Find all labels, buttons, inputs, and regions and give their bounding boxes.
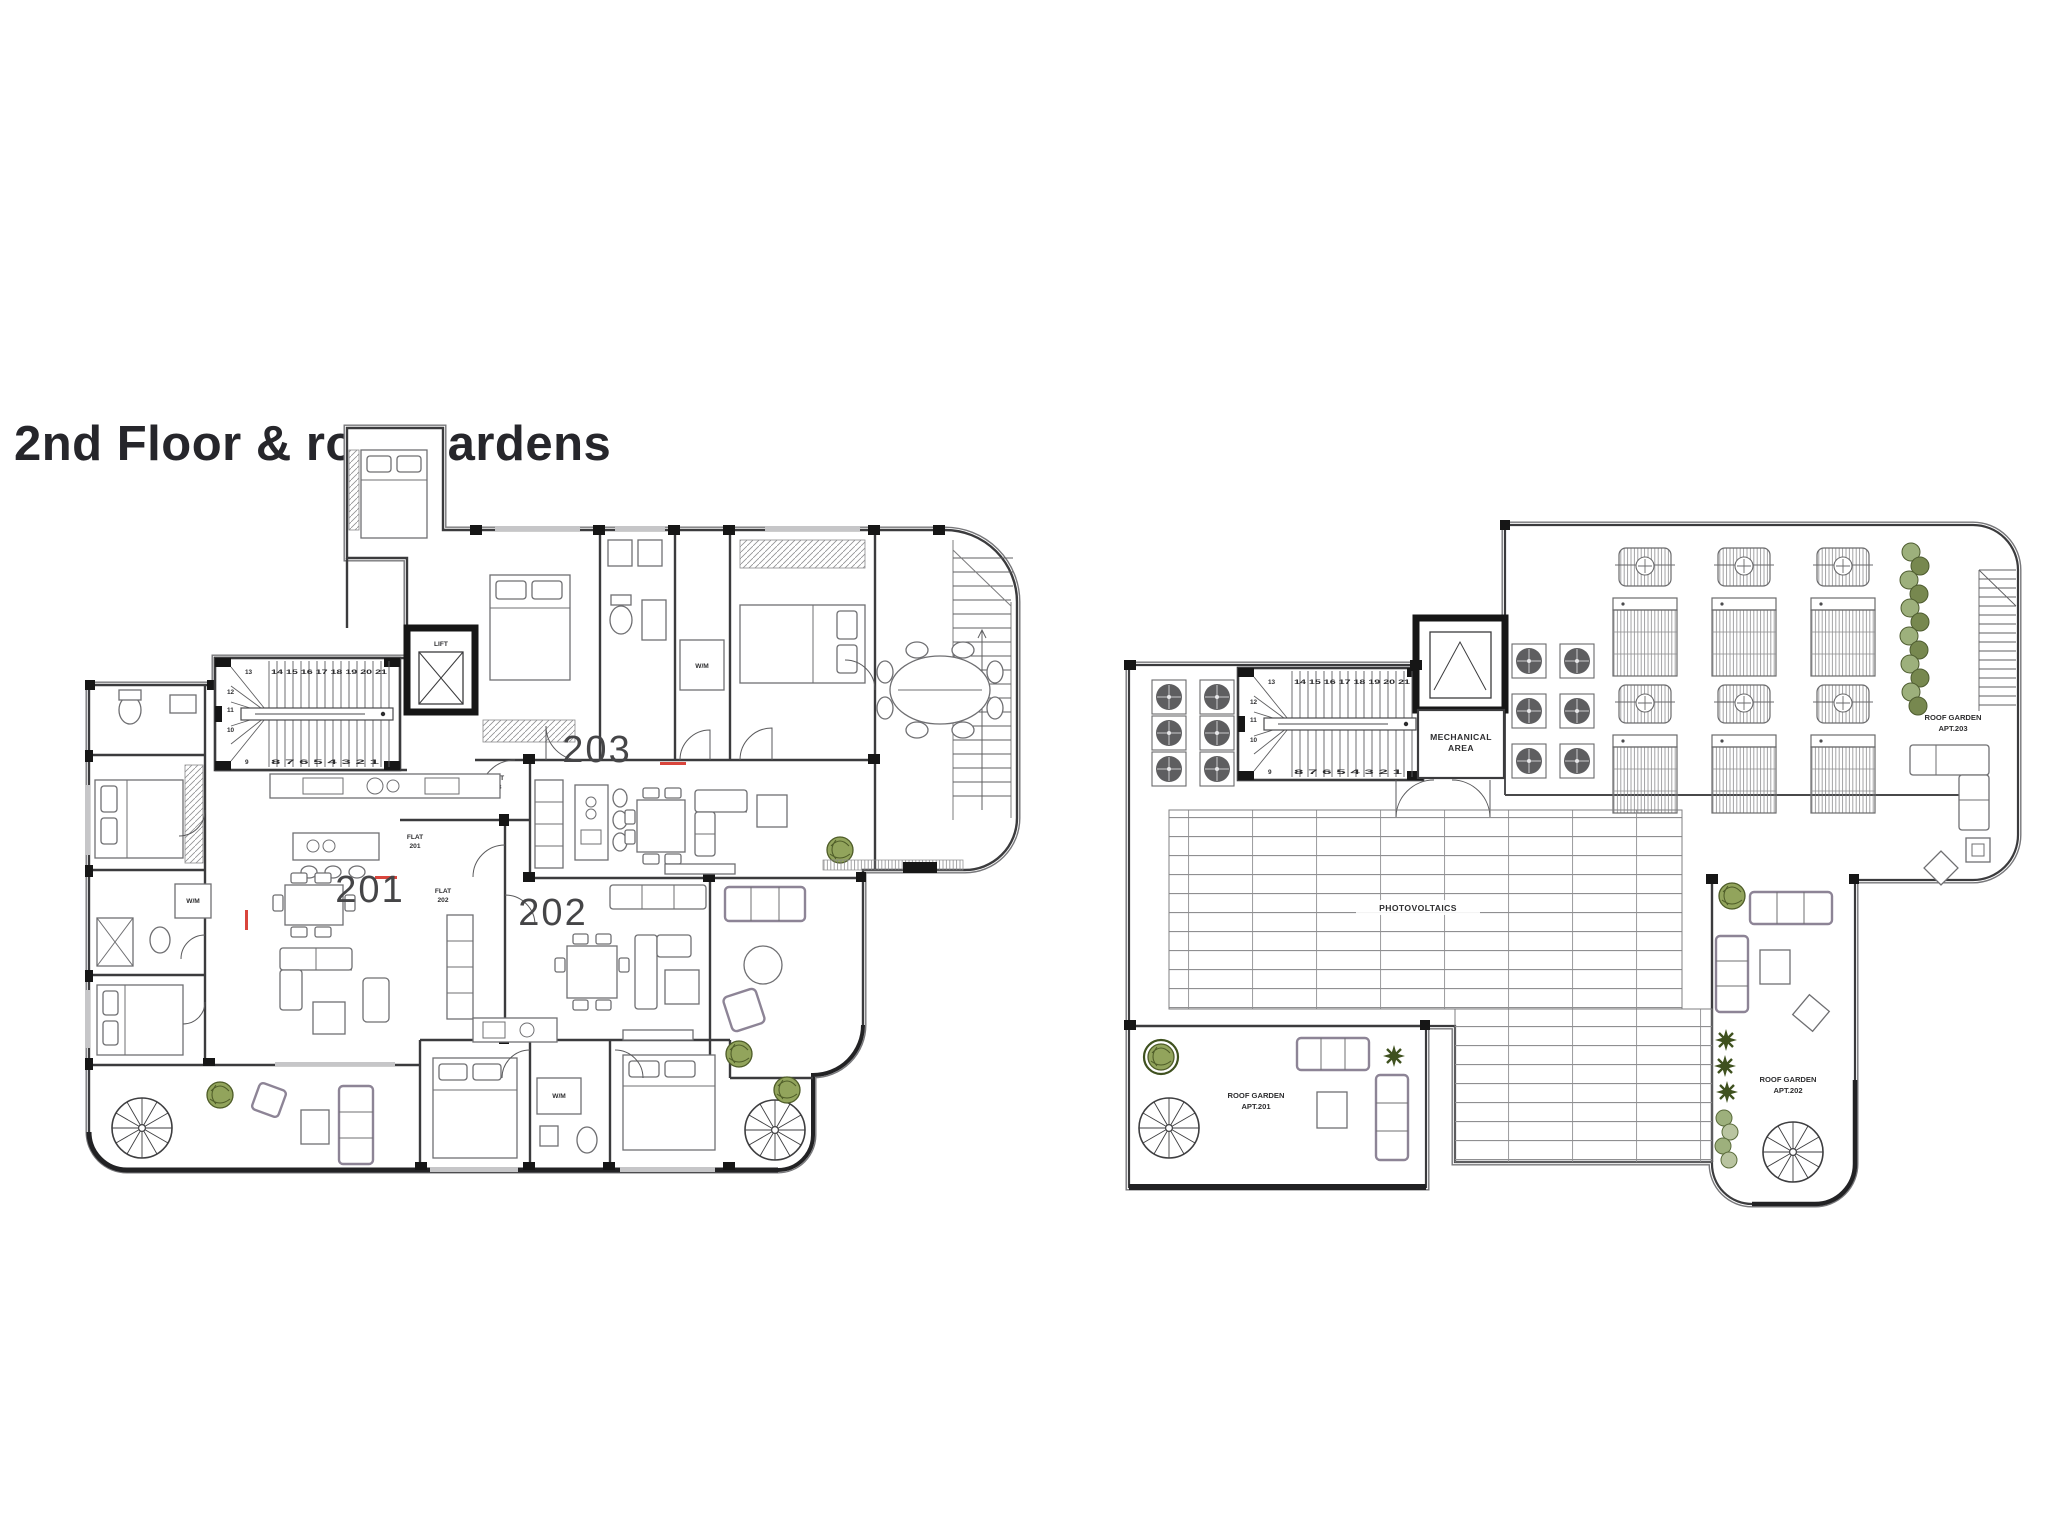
svg-text:APT.201: APT.201	[1241, 1102, 1271, 1111]
stair-number: 13	[245, 669, 253, 676]
svg-text:APT.202: APT.202	[1773, 1086, 1802, 1095]
svg-text:202: 202	[437, 897, 448, 904]
unit-203-number: 203	[562, 729, 631, 771]
wm-bottom-label: W/M	[552, 1093, 566, 1100]
roof-stairwell: 13 14 15 16 17 18 19 20 21 12 11 10 9 8 …	[1238, 668, 1423, 780]
bedroom-201a	[95, 765, 203, 863]
wm-top-label: W/M	[695, 663, 709, 670]
svg-text:APT.203: APT.203	[1938, 724, 1967, 733]
lift-label: LIFT	[434, 641, 448, 648]
stair-number: 12	[1250, 699, 1258, 706]
wm-left-label: W/M	[186, 898, 200, 905]
stair-numbers-bottom: 8 7 6 5 4 3 2 1	[1294, 769, 1403, 776]
stair-number: 10	[227, 727, 235, 734]
bedroom-A	[433, 1050, 530, 1158]
stair-number: 9	[1268, 769, 1272, 776]
flat-202-door-label: FLAT	[435, 888, 451, 895]
roof-plan: 13 14 15 16 17 18 19 20 21 12 11 10 9 8 …	[1060, 380, 2048, 1230]
stair-numbers-bottom: 8 7 6 5 4 3 2 1	[271, 759, 380, 766]
stair-number: 10	[1250, 737, 1258, 744]
tv-bench-202	[623, 1030, 693, 1040]
bedroom	[349, 450, 427, 538]
stair-number: 11	[1250, 717, 1257, 724]
page: 2nd Floor & roof gardens	[0, 0, 2048, 1536]
wm-closet-left: W/M	[175, 884, 211, 918]
garden-202-label: ROOF GARDEN	[1760, 1075, 1817, 1084]
unit-201-number: 201	[335, 869, 404, 911]
svg-text:201: 201	[409, 843, 420, 850]
stair-number: 9	[245, 759, 249, 766]
stair-number: 11	[227, 707, 234, 714]
svg-text:AREA: AREA	[1448, 743, 1474, 753]
stair-number: 12	[227, 689, 235, 696]
stair-numbers-top: 14 15 16 17 18 19 20 21	[1294, 679, 1411, 686]
lift-shaft: LIFT	[407, 628, 475, 712]
second-floor-plan: 13 14 15 16 17 18 19 20 21 12 11 10 9 8 …	[75, 390, 1055, 1190]
photovoltaics-label: PHOTOVOLTAICS	[1379, 903, 1457, 913]
flat-201-door-label: FLAT	[407, 834, 423, 841]
unit-202-number: 202	[518, 892, 587, 934]
garden-203-label: ROOF GARDEN	[1925, 713, 1982, 722]
bedroom-B	[615, 1050, 715, 1150]
stairwell: 13 14 15 16 17 18 19 20 21 12 11 10 9 8 …	[215, 658, 400, 770]
bedroom-201b	[97, 985, 183, 1055]
garden-201-label: ROOF GARDEN	[1228, 1091, 1285, 1100]
stair-number: 13	[1268, 679, 1276, 686]
mechanical-label: MECHANICAL	[1430, 732, 1492, 742]
tv-bench	[665, 864, 735, 874]
sofa-202	[635, 935, 699, 1009]
stair-numbers-top: 14 15 16 17 18 19 20 21	[271, 669, 388, 676]
sofa-202-top	[610, 885, 706, 909]
